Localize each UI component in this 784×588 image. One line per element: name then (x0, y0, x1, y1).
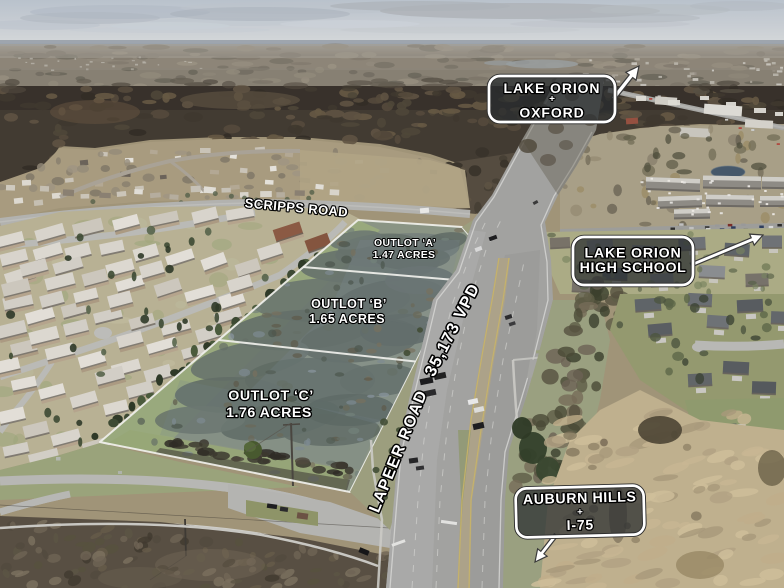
svg-text:+: + (549, 94, 555, 105)
svg-text:OUTLOT ‘B’: OUTLOT ‘B’ (311, 297, 387, 311)
svg-text:1.47 ACRES: 1.47 ACRES (373, 249, 436, 261)
svg-text:OUTLOT ‘C’: OUTLOT ‘C’ (228, 388, 313, 404)
svg-text:OXFORD: OXFORD (519, 105, 584, 121)
svg-text:I-75: I-75 (566, 516, 594, 533)
svg-text:1.65 ACRES: 1.65 ACRES (309, 312, 385, 326)
svg-text:LAKE ORION: LAKE ORION (584, 245, 681, 261)
svg-text:AUBURN HILLS: AUBURN HILLS (523, 489, 637, 508)
svg-text:OUTLOT ‘A’: OUTLOT ‘A’ (374, 237, 436, 249)
svg-text:HIGH SCHOOL: HIGH SCHOOL (580, 260, 687, 276)
svg-text:1.76 ACRES: 1.76 ACRES (226, 405, 312, 421)
